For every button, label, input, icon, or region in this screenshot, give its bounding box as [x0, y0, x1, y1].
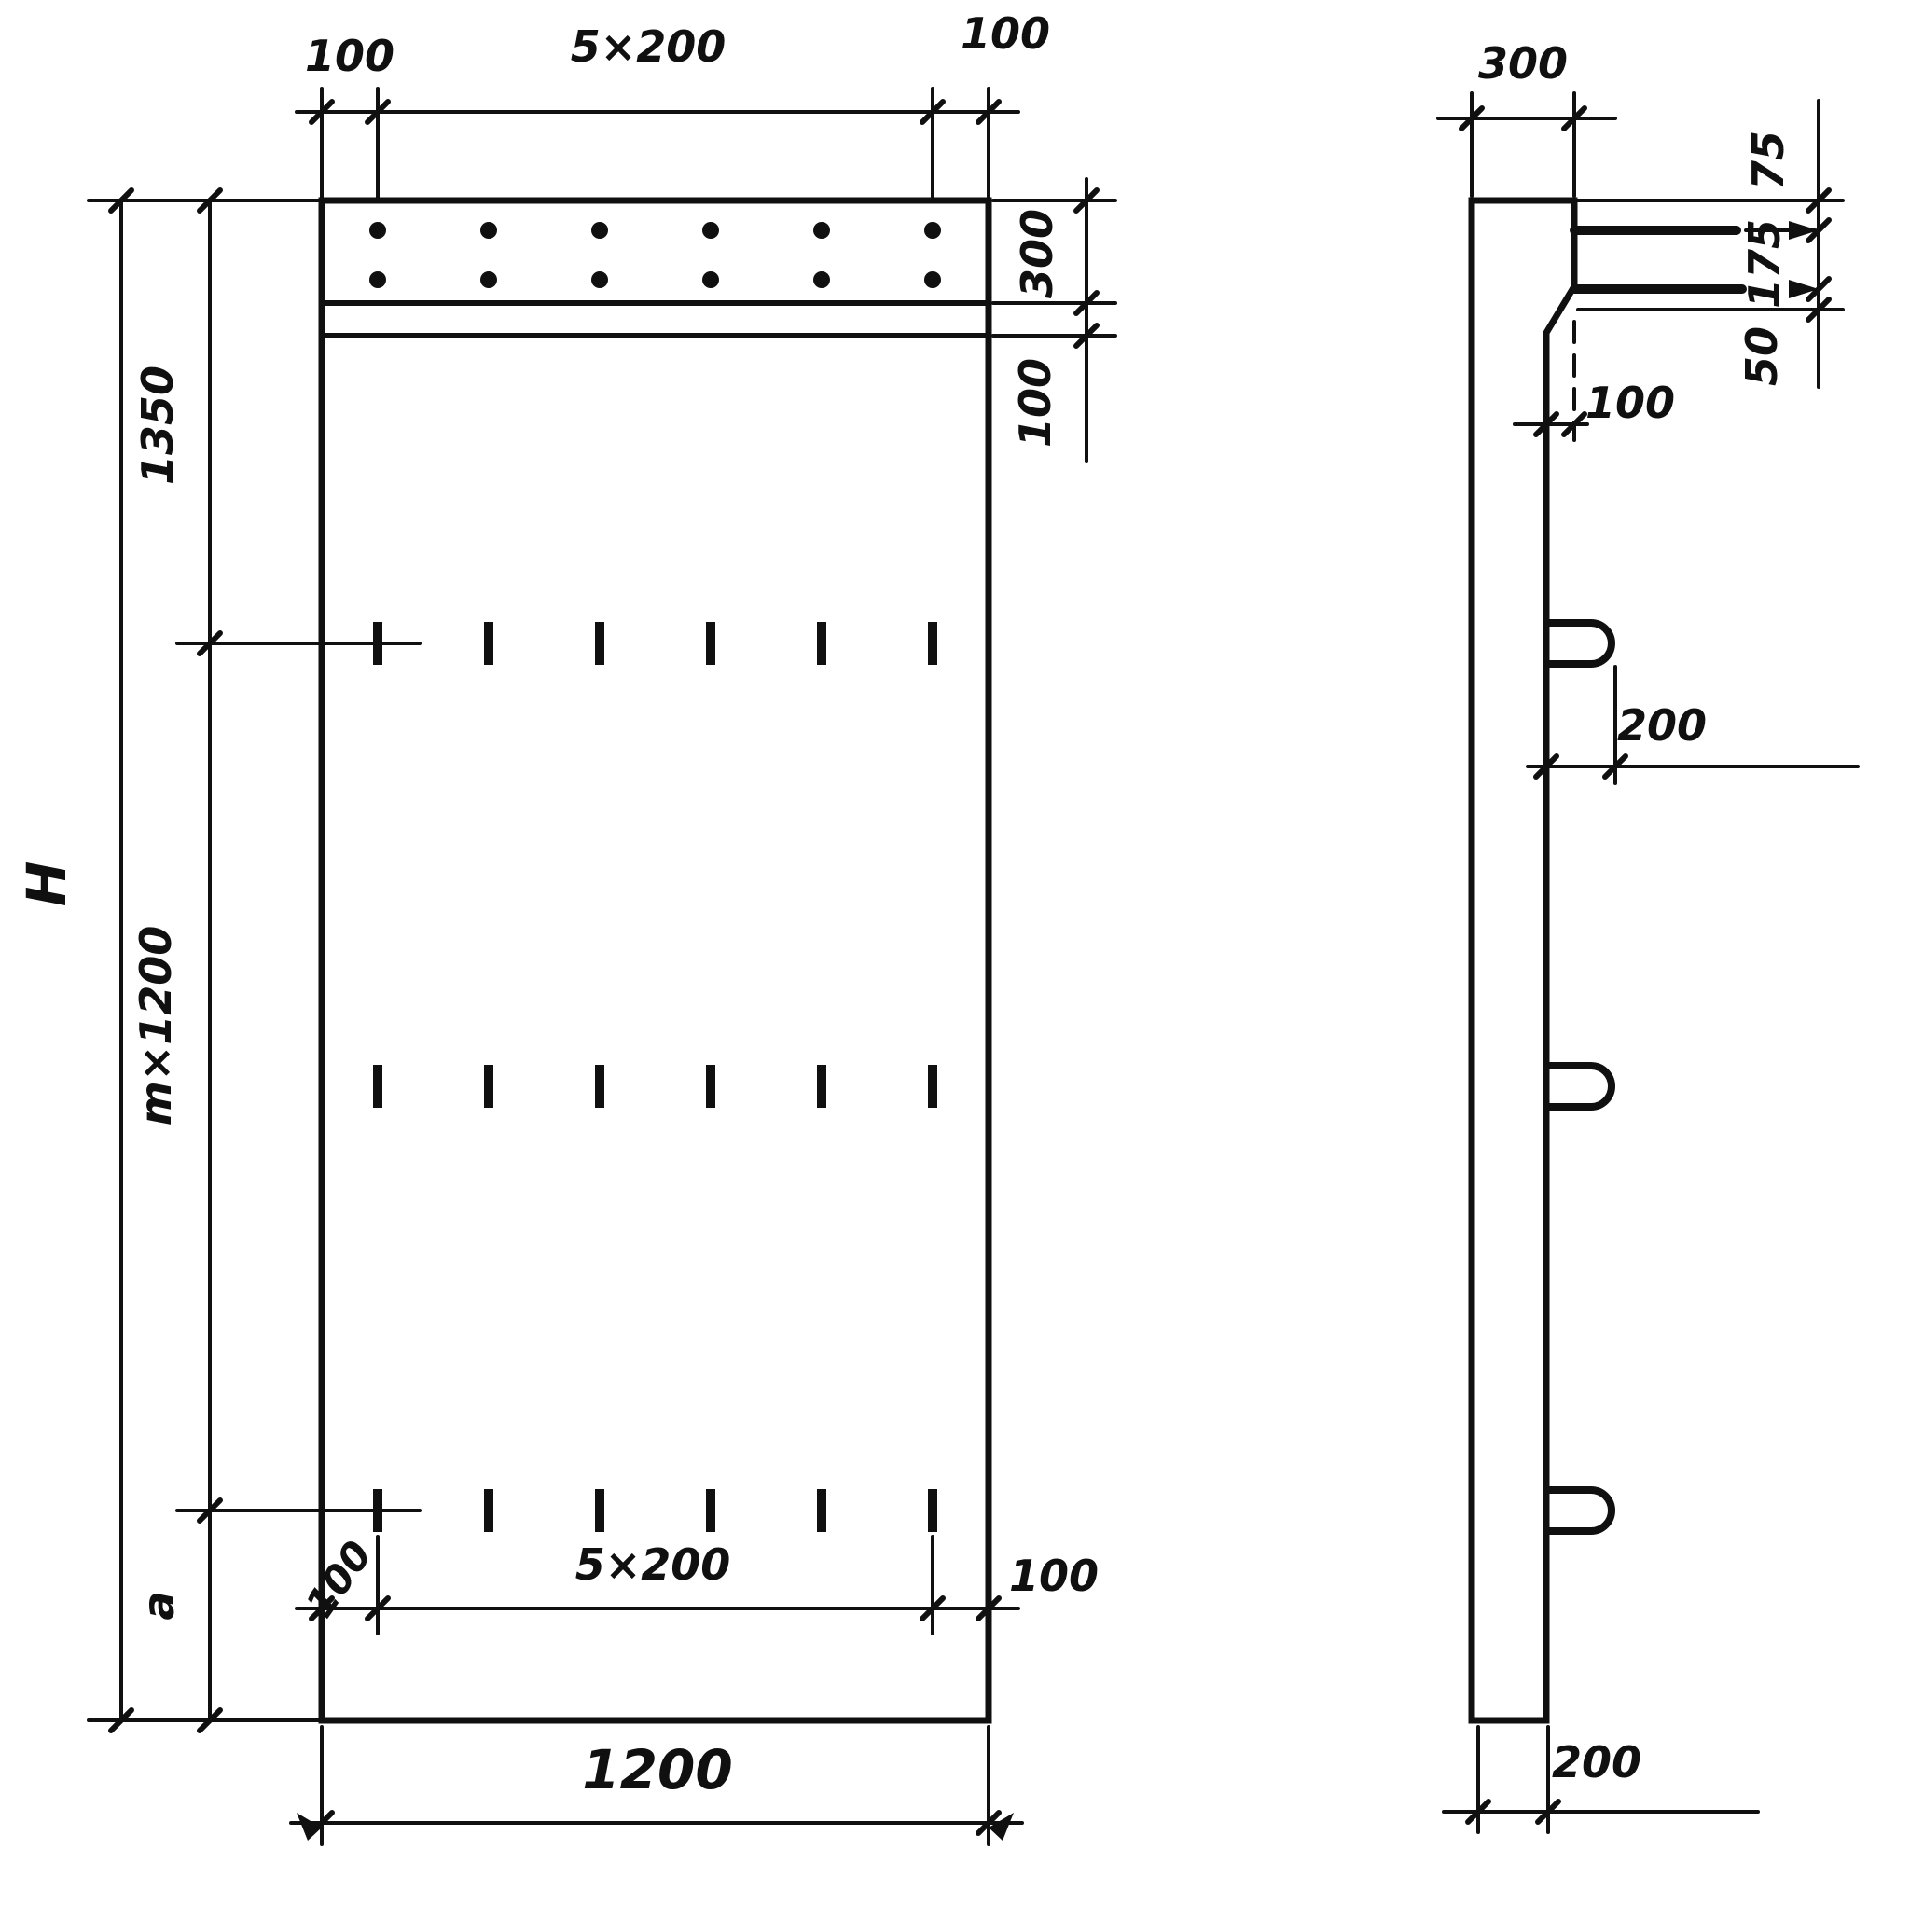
dim-front-top-left: 100	[305, 31, 394, 81]
dim-front-left-1350: 1350	[132, 366, 183, 485]
dim-front-left-overall: H	[15, 862, 78, 907]
dim-side-right-75: 75	[1743, 131, 1793, 190]
dim-side-right-175: 175	[1739, 219, 1790, 309]
dim-side-loop: 200	[1617, 700, 1707, 751]
dim-front-bottom-center: 5×200	[575, 1539, 731, 1590]
dim-side-bottom: 200	[1552, 1737, 1641, 1787]
panel-drawing-svg: 100 5×200 100 300 100	[0, 0, 1910, 1932]
dim-front-left-mx1200: m×1200	[131, 926, 181, 1126]
dim-front-top-center: 5×200	[571, 21, 727, 72]
dim-side-right-50: 50	[1737, 326, 1787, 386]
dim-front-right-strip: 300	[1012, 209, 1062, 298]
dim-front-bottom-right: 100	[1009, 1551, 1099, 1601]
dim-side-step: 100	[1585, 378, 1675, 428]
dim-side-top-width: 300	[1478, 38, 1568, 89]
technical-drawing-page: 100 5×200 100 300 100	[0, 0, 1910, 1932]
dim-front-right-below: 100	[1010, 358, 1060, 448]
dim-front-top-right: 100	[961, 8, 1050, 59]
dim-front-bottom-overall: 1200	[582, 1738, 732, 1801]
dim-front-left-a: a	[133, 1591, 184, 1620]
